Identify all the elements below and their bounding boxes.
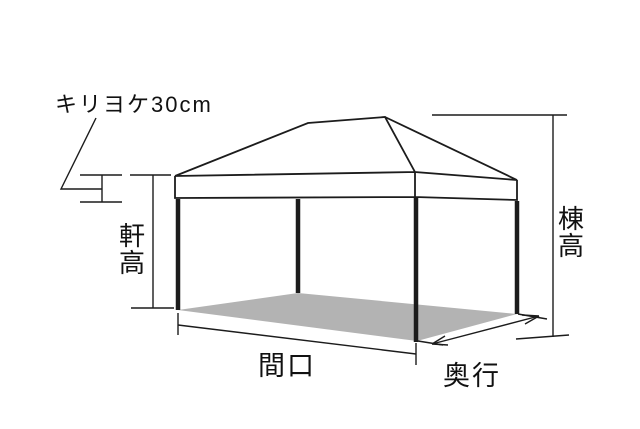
depth-label: 奥行 [443,354,501,393]
eave-height-label: 軒高 [119,223,145,278]
tent-canopy-outline [175,117,517,200]
ridge-height-bottom-tick [516,335,569,339]
ridge-height-label: 棟高 [558,206,584,261]
frontage-label: 間口 [258,344,316,383]
valance-leader-line [61,118,102,189]
valance-callout [61,118,122,202]
valance-label: キリヨケ30cm [55,87,213,119]
diagram-canvas [0,0,640,429]
tent-dimension-diagram: キリヨケ30cm 軒高 棟高 間口 奥行 [0,0,640,429]
floor-shadow [178,293,517,341]
